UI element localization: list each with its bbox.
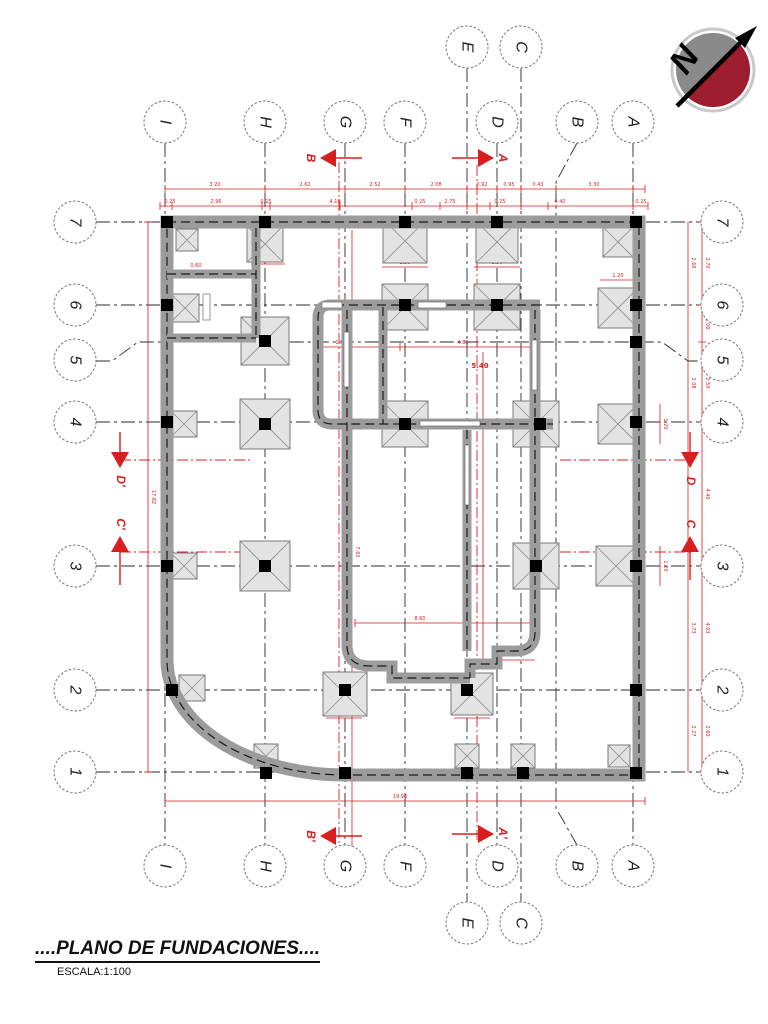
grid-label: 7 [714,218,731,228]
section-arrow-icon [320,149,336,167]
grid-label: 3 [67,562,84,571]
dim-label: 1.20 [612,273,623,279]
grid-label: 5 [67,356,84,365]
section-arrow-icon [478,825,494,843]
grid-label: 2 [714,685,731,695]
grid-label: 1 [67,768,84,777]
grid-label: E [459,42,476,53]
section-label: C [684,520,698,529]
grid-label: 3 [714,562,731,571]
dim-label: 2.50 [704,377,710,388]
dim-label: 4.80 [457,340,468,346]
dim-label: 4.40 [554,199,565,205]
section-marker-d-right: D [681,432,699,486]
dim-label: 3.30 [588,182,599,188]
dim-label: 0.25 [260,199,271,205]
section-arrow-icon [111,536,129,552]
dim-label: 3.08 [690,377,696,388]
section-label: C' [114,518,128,531]
grid-label: 2 [67,685,84,695]
section-arrow-icon [320,827,336,845]
dim-line-860 [355,619,530,627]
dim-label: 2.60 [704,725,710,736]
grid-label: C [513,917,530,929]
dim-label: 0.25 [414,199,425,205]
dim-label: 2.52 [369,182,380,188]
dim-label: 3.20 [209,182,220,188]
section-label: D' [114,475,128,488]
dim-label: 2.75 [444,199,455,205]
wall-opening [418,302,446,308]
grid-label: H [257,860,274,872]
dim-label: 4.10 [329,199,340,205]
section-arrow-icon [681,536,699,552]
section-label: D [684,477,698,486]
dim-label: 0.95 [503,182,514,188]
grid-label: G [337,116,354,128]
dim-label: 2.96 [210,199,221,205]
grid-label: 7 [67,218,84,228]
grid-label: F [397,861,414,872]
grid-label: 1 [714,768,731,777]
dim-line-540 [483,352,535,660]
wall-opening [532,340,537,390]
section-marker-c-right: C [681,520,699,580]
grid-line-b-bent [556,143,577,845]
foundation-plan-drawing: 3.20 2.62 2.52 2.08 0.92 0.95 0.43 3.30 … [0,0,768,1024]
wall-opening [420,421,480,426]
wall-opening [465,445,469,505]
grid-label: 6 [67,301,84,310]
dim-label: 1.20 [662,418,668,429]
section-arrow-icon [478,149,494,167]
foundation-plan-sheet: 3.20 2.62 2.52 2.08 0.92 0.95 0.43 3.30 … [0,0,768,1024]
dim-label: 4.03 [704,622,710,633]
grid-label: H [257,116,274,128]
grid-label: 6 [714,301,731,310]
dim-label: 0.25 [164,199,175,205]
grid-label: B [569,861,586,872]
grid-label: 4 [67,418,84,427]
grid-label: G [337,860,354,872]
grid-label: F [397,117,414,128]
dim-label: 0.60 [190,263,201,269]
dim-label: 0.92 [476,182,487,188]
section-marker-a-top: A [452,149,510,167]
wall-opening [322,302,342,308]
dim-label: 8.60 [414,616,425,622]
grid-label: E [459,918,476,929]
grid-label: D [489,860,506,872]
dim-label: 2.66 [690,257,696,268]
dim-label: 2.70 [704,257,710,268]
grid-label: 4 [714,418,731,427]
dim-label: 4.40 [704,488,710,499]
section-label: B [304,154,318,163]
column-markers [161,216,642,779]
section-label: B' [304,830,318,843]
grid-label: A [625,116,642,128]
grid-label: D [489,116,506,128]
grid-label: C [513,41,530,53]
dim-label: 0.25 [635,199,646,205]
grid-label: I [157,120,174,125]
dim-label: 17.82 [150,490,156,504]
dim-label: 1.20 [662,560,668,571]
section-marker-b-top: B [304,149,362,167]
section-label: A' [496,826,510,840]
grid-label: I [157,864,174,869]
drawing-title: ....PLANO DE FUNDACIONES.... [35,938,320,963]
dim-label: 2.08 [430,182,441,188]
wall-opening [203,294,210,320]
section-marker-a-bottom: A' [452,825,510,843]
north-arrow: N [661,26,757,111]
dim-label: 2.62 [299,182,310,188]
interior-wall [383,307,467,651]
dim-label: 0.43 [532,182,543,188]
dim-line-480 [322,343,540,351]
dim-label: 7.62 [354,546,360,557]
section-marker-b-bottom: B' [304,827,362,845]
section-label: A [496,153,510,163]
drawing-scale: ESCALA:1:100 [57,966,320,978]
wall-opening [344,332,349,387]
title-block: ....PLANO DE FUNDACIONES.... ESCALA:1:10… [35,938,320,978]
grid-label: A [625,860,642,872]
grid-label: 5 [714,356,731,365]
dim-label: 0.25 [494,199,505,205]
dim-label: 3.73 [690,622,696,633]
dim-label: 5.40 [471,362,488,370]
dim-label: 2.27 [690,725,696,736]
dim-label: 19.98 [393,794,407,800]
grid-label: B [569,117,586,128]
section-marker-c-left: C' [111,518,129,585]
grid-line-5-bent [96,342,701,361]
